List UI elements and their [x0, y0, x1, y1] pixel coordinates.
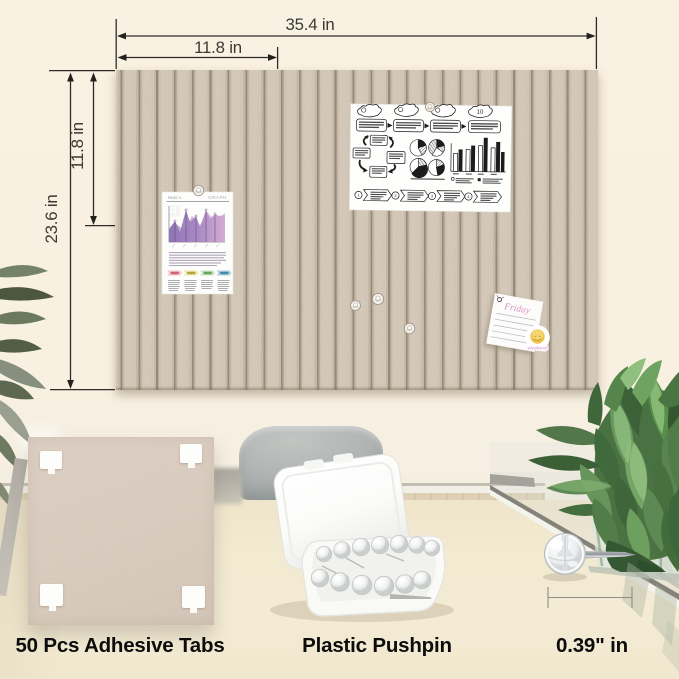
svg-text:35.4 in: 35.4 in	[286, 15, 335, 34]
svg-text:11.8 in: 11.8 in	[194, 38, 242, 57]
svg-text:11.8 in: 11.8 in	[68, 122, 87, 170]
svg-text:23.6 in: 23.6 in	[42, 195, 61, 244]
